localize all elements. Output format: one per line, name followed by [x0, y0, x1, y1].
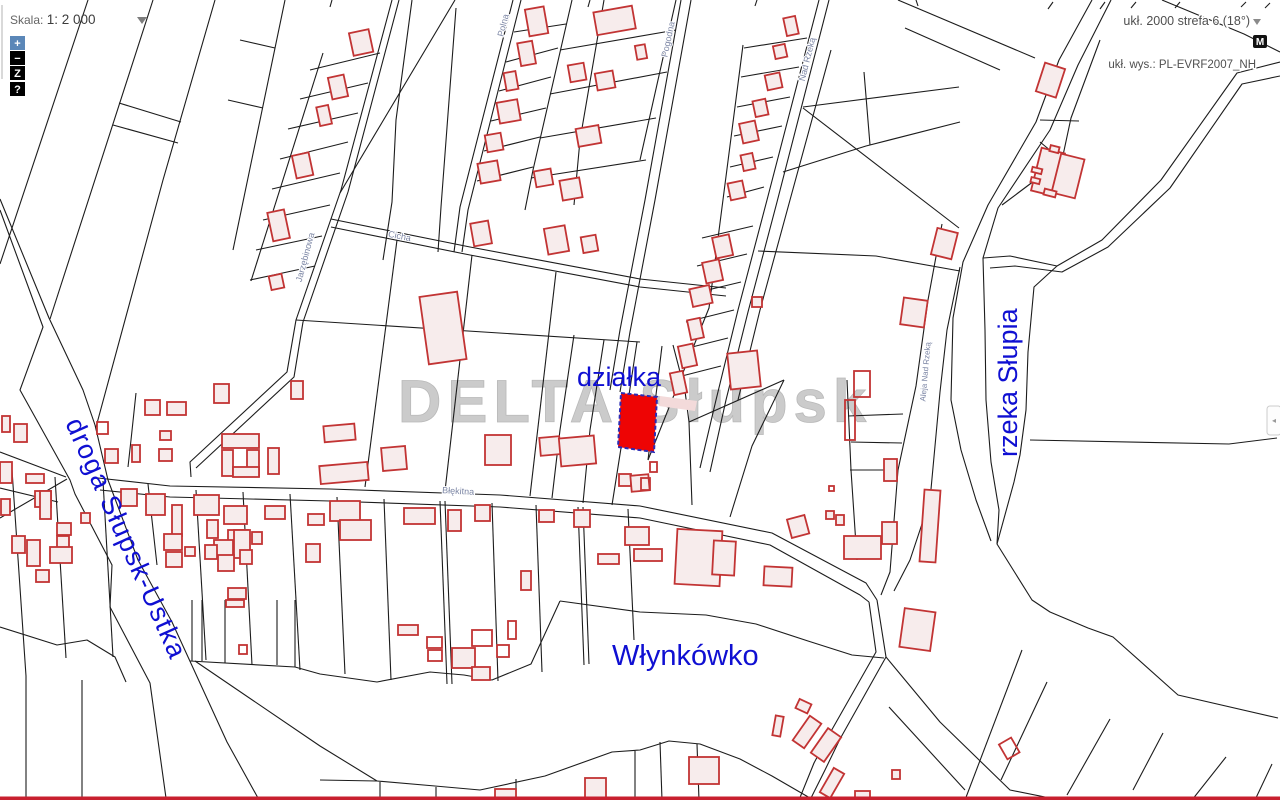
svg-text:M: M	[1256, 37, 1264, 48]
svg-text:Z: Z	[14, 68, 21, 80]
svg-text:rzeka Słupia: rzeka Słupia	[993, 307, 1023, 457]
svg-text:◂: ◂	[1272, 416, 1276, 425]
svg-text:−: −	[14, 53, 20, 65]
svg-text:ukł. 2000 strefa 6 (18°): ukł. 2000 strefa 6 (18°)	[1123, 14, 1250, 28]
svg-text:?: ?	[14, 84, 21, 96]
svg-text:Skala: 1: 2 000: Skala: 1: 2 000	[10, 12, 95, 27]
svg-text:Włynkówko: Włynkówko	[612, 640, 759, 672]
svg-text:Błękitna: Błękitna	[442, 485, 475, 497]
svg-text:ukł. wys.: PL-EVRF2007_NH: ukł. wys.: PL-EVRF2007_NH	[1108, 59, 1256, 71]
svg-text:+: +	[14, 38, 20, 50]
svg-text:działka: działka	[577, 362, 662, 392]
